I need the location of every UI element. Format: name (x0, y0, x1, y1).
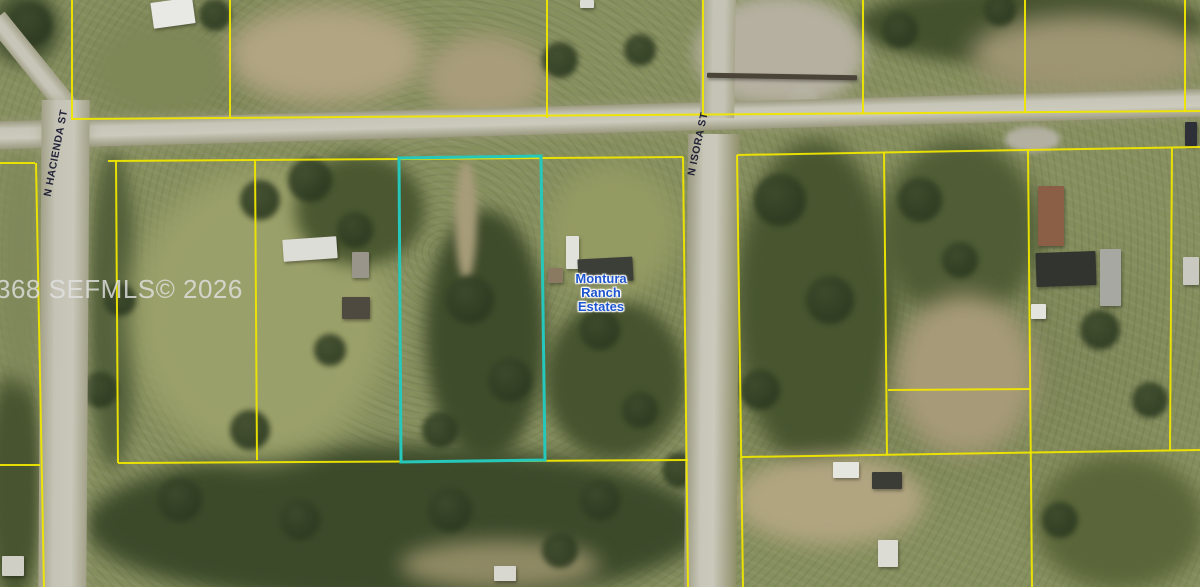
parcel-boundary-line (888, 389, 1030, 390)
subdivision-label: Montura Ranch Estates (558, 272, 644, 314)
parcel-boundary-line (742, 450, 1200, 457)
highlighted-parcel-boundary (399, 156, 545, 462)
parcel-boundary-line (683, 157, 688, 587)
subdivision-label-line1: Montura (558, 272, 644, 286)
parcel-boundary-line (737, 147, 1200, 155)
subdivision-label-line3: Estates (558, 300, 644, 314)
parcel-boundary-line (1028, 150, 1032, 587)
parcel-boundary-line (255, 160, 257, 460)
parcel-boundary-line (737, 155, 743, 587)
parcel-boundary-line (36, 163, 44, 587)
parcel-boundary-line (1170, 148, 1172, 450)
parcel-boundary-line (116, 161, 118, 463)
aerial-map: N HACIENDA ST N ISORA ST Montura Ranch E… (0, 0, 1200, 587)
parcel-boundary-line (108, 157, 683, 161)
parcel-boundary-line (884, 152, 887, 455)
parcel-boundary-line (72, 111, 1200, 119)
subdivision-label-line2: Ranch (558, 286, 644, 300)
mls-watermark: 368 SEFMLS© 2026 (0, 274, 243, 305)
